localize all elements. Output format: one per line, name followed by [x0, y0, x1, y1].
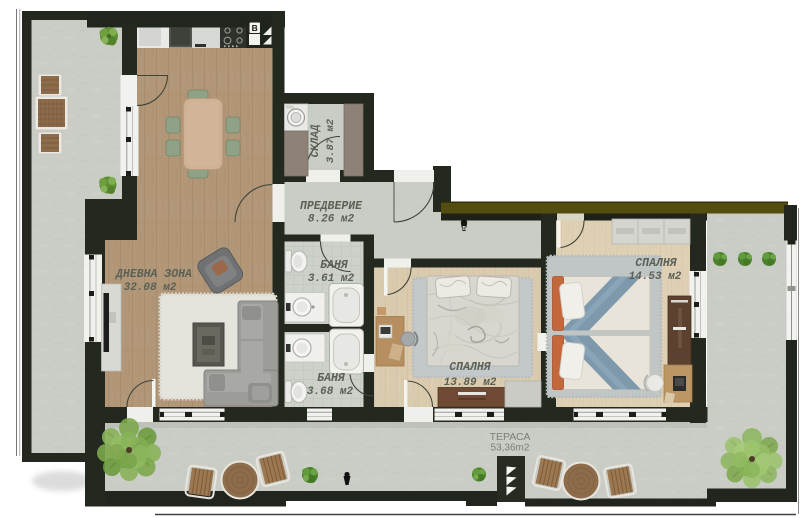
svg-text:СКЛАД: СКЛАД	[310, 124, 322, 157]
svg-text:БАНЯ: БАНЯ	[320, 259, 349, 272]
svg-text:53,36m2: 53,36m2	[491, 443, 530, 454]
svg-text:B: B	[462, 226, 466, 232]
svg-text:13.89 м2: 13.89 м2	[444, 377, 497, 389]
svg-text:3.68 м2: 3.68 м2	[307, 386, 354, 398]
svg-text:8.26 м2: 8.26 м2	[308, 214, 355, 226]
svg-text:3.87 м2: 3.87 м2	[325, 118, 337, 163]
svg-text:ДНЕВНА ЗОНА: ДНЕВНА ЗОНА	[115, 268, 192, 281]
svg-text:32.08 м2: 32.08 м2	[124, 282, 177, 294]
svg-text:3.61 м2: 3.61 м2	[308, 273, 355, 285]
svg-text:B: B	[252, 23, 258, 33]
svg-text:ТЕРАСА: ТЕРАСА	[490, 431, 531, 443]
svg-text:14.53 м2: 14.53 м2	[629, 271, 682, 283]
svg-text:ПРЕДВЕРИЕ: ПРЕДВЕРИЕ	[300, 200, 363, 213]
svg-text:СПАЛНЯ: СПАЛНЯ	[449, 361, 492, 374]
svg-text:БАНЯ: БАНЯ	[317, 372, 346, 385]
svg-text:СПАЛНЯ: СПАЛНЯ	[635, 257, 678, 270]
